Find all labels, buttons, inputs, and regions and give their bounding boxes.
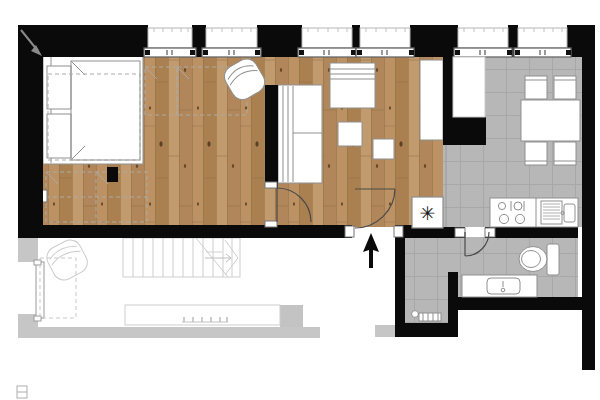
dining-table xyxy=(521,100,580,141)
stairs xyxy=(123,238,240,277)
fridge-column xyxy=(453,57,485,117)
wall-right xyxy=(582,25,595,370)
wall-bottom xyxy=(18,225,352,238)
window xyxy=(298,28,356,57)
terrace-door xyxy=(34,260,44,321)
side-table xyxy=(338,122,362,146)
wall-left xyxy=(18,25,43,238)
terrace-railing xyxy=(125,305,280,325)
terrace-corner-block xyxy=(280,305,303,327)
tv-cabinet xyxy=(420,60,443,140)
washbasin-counter xyxy=(462,275,537,297)
terrace-edge-block xyxy=(18,238,38,262)
side-table xyxy=(373,139,394,159)
window xyxy=(454,28,512,57)
floor-plan: ✳ xyxy=(0,0,600,400)
boiler: ✳ xyxy=(412,197,443,228)
pillow xyxy=(47,66,71,109)
pillow xyxy=(47,114,71,158)
chair xyxy=(525,142,547,165)
wall-pillar xyxy=(443,117,486,145)
plan-marker xyxy=(17,386,27,398)
terrace-strip-end xyxy=(375,325,395,337)
chair xyxy=(525,76,547,99)
dresser xyxy=(330,63,375,108)
sofa xyxy=(278,85,322,183)
chair xyxy=(554,142,576,165)
window xyxy=(514,28,571,57)
window xyxy=(202,28,261,57)
floor-plan-canvas: ✳ xyxy=(0,0,600,400)
window xyxy=(144,28,196,57)
wall-partition xyxy=(265,85,278,188)
wall-stub xyxy=(107,167,118,182)
chair xyxy=(554,76,576,99)
window xyxy=(356,28,414,57)
boiler-star-icon: ✳ xyxy=(420,202,436,224)
terrace-bottom-strip xyxy=(18,327,320,338)
tile-floor-hall xyxy=(403,232,448,325)
